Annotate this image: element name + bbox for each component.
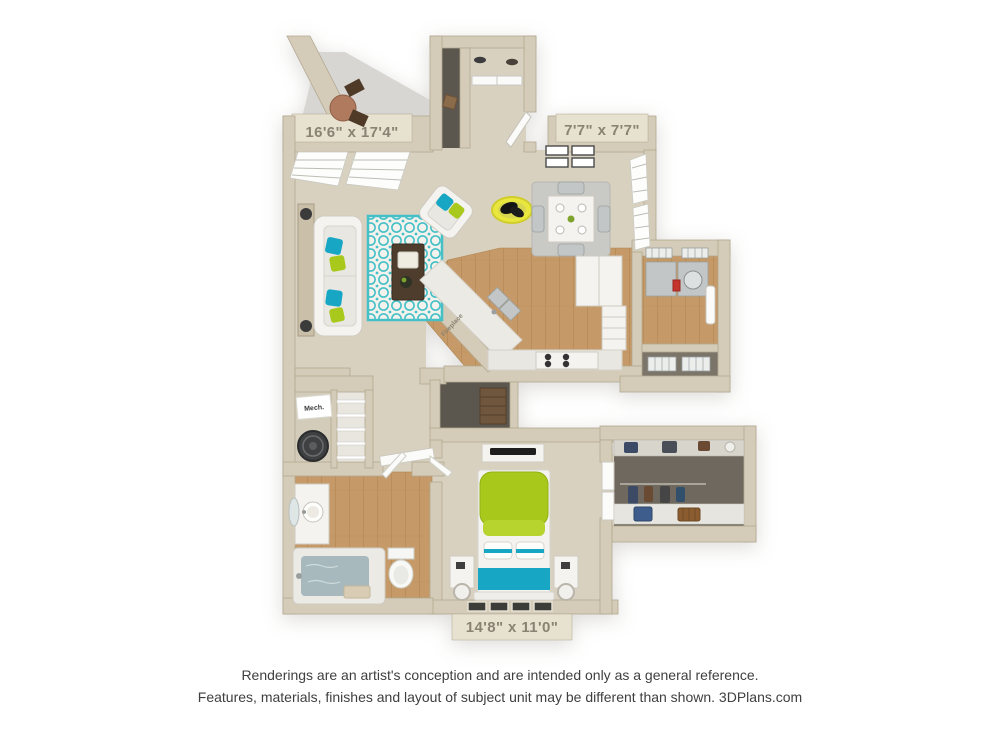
entry-top-wall	[430, 36, 536, 48]
walkin-bottom-wall	[612, 526, 756, 542]
hanging-clothes-4	[676, 487, 685, 502]
bed-blanket-teal	[478, 568, 550, 590]
bedroom-east-wall-a	[600, 440, 612, 462]
place-setting-2	[578, 204, 586, 212]
dryer-door	[684, 271, 702, 289]
dining-chair-bottom	[558, 244, 584, 256]
pillow-stripe-1	[484, 549, 512, 553]
shoes-pair-1	[474, 57, 486, 63]
shelf-bag-3	[698, 441, 710, 451]
table-lamp-top	[300, 208, 312, 220]
floorplan-page: { "page": { "background_color": "#ffffff…	[0, 0, 1000, 750]
kitchen-laundry-divider	[632, 252, 642, 366]
closet-door-panel-2	[602, 492, 614, 520]
closet-door-panel-1	[602, 462, 614, 490]
storage-bottom-wall	[620, 376, 730, 392]
bed-pillow-lime-large	[480, 472, 548, 526]
entry-right-stub	[524, 142, 536, 152]
washer	[646, 262, 676, 296]
walkin-top-wall	[600, 426, 756, 440]
dining-chair-top	[558, 182, 584, 194]
shelf-bag-1	[624, 442, 638, 453]
sofa-pillow-lime-2	[329, 307, 346, 324]
place-setting-4	[578, 226, 586, 234]
nightstand-right-item	[561, 562, 570, 569]
living-room-dimensions: 16'6" x 17'4"	[305, 124, 398, 141]
dining-chair-left	[532, 206, 544, 232]
shoes-pair-2	[506, 59, 518, 65]
bed-pillow-lime-small	[483, 520, 545, 536]
toilet-seat	[394, 566, 409, 585]
centerpiece	[568, 216, 575, 223]
pillow-stripe-2	[516, 549, 544, 553]
table-lamp-bottom	[300, 320, 312, 332]
closet-storage-box	[443, 95, 458, 110]
entry-left-wall	[430, 36, 442, 150]
place-setting-3	[556, 226, 564, 234]
laundry-door	[706, 286, 715, 324]
dining-area-dimensions: 7'7" x 7'7"	[564, 122, 640, 139]
burner-4	[563, 361, 569, 367]
disclaimer-line-1: Renderings are an artist's conception an…	[0, 664, 1000, 686]
bedroom-east-wall-b	[600, 518, 612, 614]
bath-mat	[344, 586, 370, 598]
mech-sign: Mech.	[296, 395, 332, 420]
mech-linen-divider	[331, 390, 337, 468]
hanging-clothes-2	[644, 486, 653, 502]
tv	[490, 448, 536, 455]
suitcase	[634, 507, 652, 521]
laundry-storage-divider	[642, 344, 718, 352]
coffee-table-plant	[400, 276, 412, 288]
bedroom-west-wall-b	[430, 482, 442, 614]
bed-footboard	[474, 592, 554, 600]
place-setting-1	[556, 204, 564, 212]
tub-faucet	[296, 573, 302, 579]
vanity-faucet	[302, 510, 306, 514]
console-table	[298, 204, 314, 336]
disclaimer: Renderings are an artist's conception an…	[0, 664, 1000, 708]
shelf-bag-2	[662, 441, 677, 453]
vanity-mirror	[289, 498, 299, 526]
kitchen-faucet	[492, 310, 497, 315]
floor-plan-rendering: Mech.	[0, 0, 1000, 660]
coffee-table-tray	[398, 252, 418, 268]
left-outer-wall	[283, 116, 295, 614]
walkin-right-wall	[744, 426, 756, 542]
right-outer-wall	[718, 240, 730, 392]
entry-closet-divider	[460, 48, 470, 148]
hanging-clothes-1	[628, 486, 638, 504]
plant-leaf	[402, 278, 407, 283]
sofa-pillow-teal-2	[325, 289, 343, 307]
disclaimer-line-2: Features, materials, finishes and layout…	[0, 686, 1000, 708]
linen-hall-divider	[365, 390, 373, 468]
toilet-tank	[388, 548, 414, 559]
entry-right-wall	[524, 36, 536, 112]
nightstand-left-item	[456, 562, 465, 569]
vanity-sink-bowl	[307, 506, 319, 518]
bedroom-top-wall	[430, 428, 618, 442]
burner-1	[545, 354, 551, 360]
ring-lamp-left	[454, 584, 470, 600]
hanging-clothes-3	[660, 486, 670, 503]
burner-2	[563, 354, 569, 360]
water-heater-cap	[309, 442, 317, 450]
bedroom-dimensions: 14'8" x 11'0"	[466, 619, 558, 636]
sofa-pillow-lime-1	[329, 255, 346, 272]
nook-left-wall	[430, 380, 440, 430]
ring-lamp-right	[558, 584, 574, 600]
dining-chair-right	[598, 206, 610, 232]
sofa-pillow-teal-1	[325, 237, 344, 256]
detergent-bottle	[673, 280, 680, 291]
burner-3	[545, 361, 551, 367]
shelf-hatbox	[725, 442, 735, 452]
